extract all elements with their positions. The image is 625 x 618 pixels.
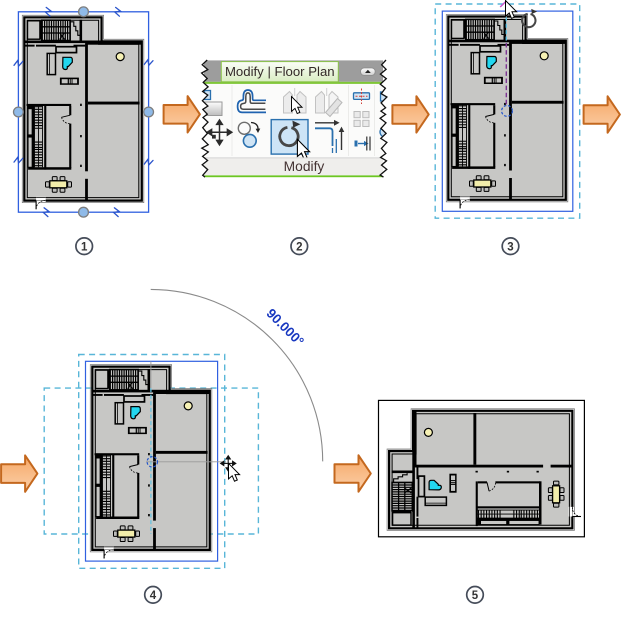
svg-text:4: 4	[150, 590, 157, 602]
svg-text:5: 5	[472, 590, 479, 602]
svg-text:Modify | Floor Plan: Modify | Floor Plan	[225, 64, 335, 79]
svg-text:1: 1	[81, 241, 88, 253]
svg-text:2: 2	[296, 241, 302, 253]
svg-text:3: 3	[507, 241, 513, 253]
svg-text:90.000°: 90.000°	[264, 306, 307, 349]
svg-text:Modify: Modify	[284, 159, 325, 174]
